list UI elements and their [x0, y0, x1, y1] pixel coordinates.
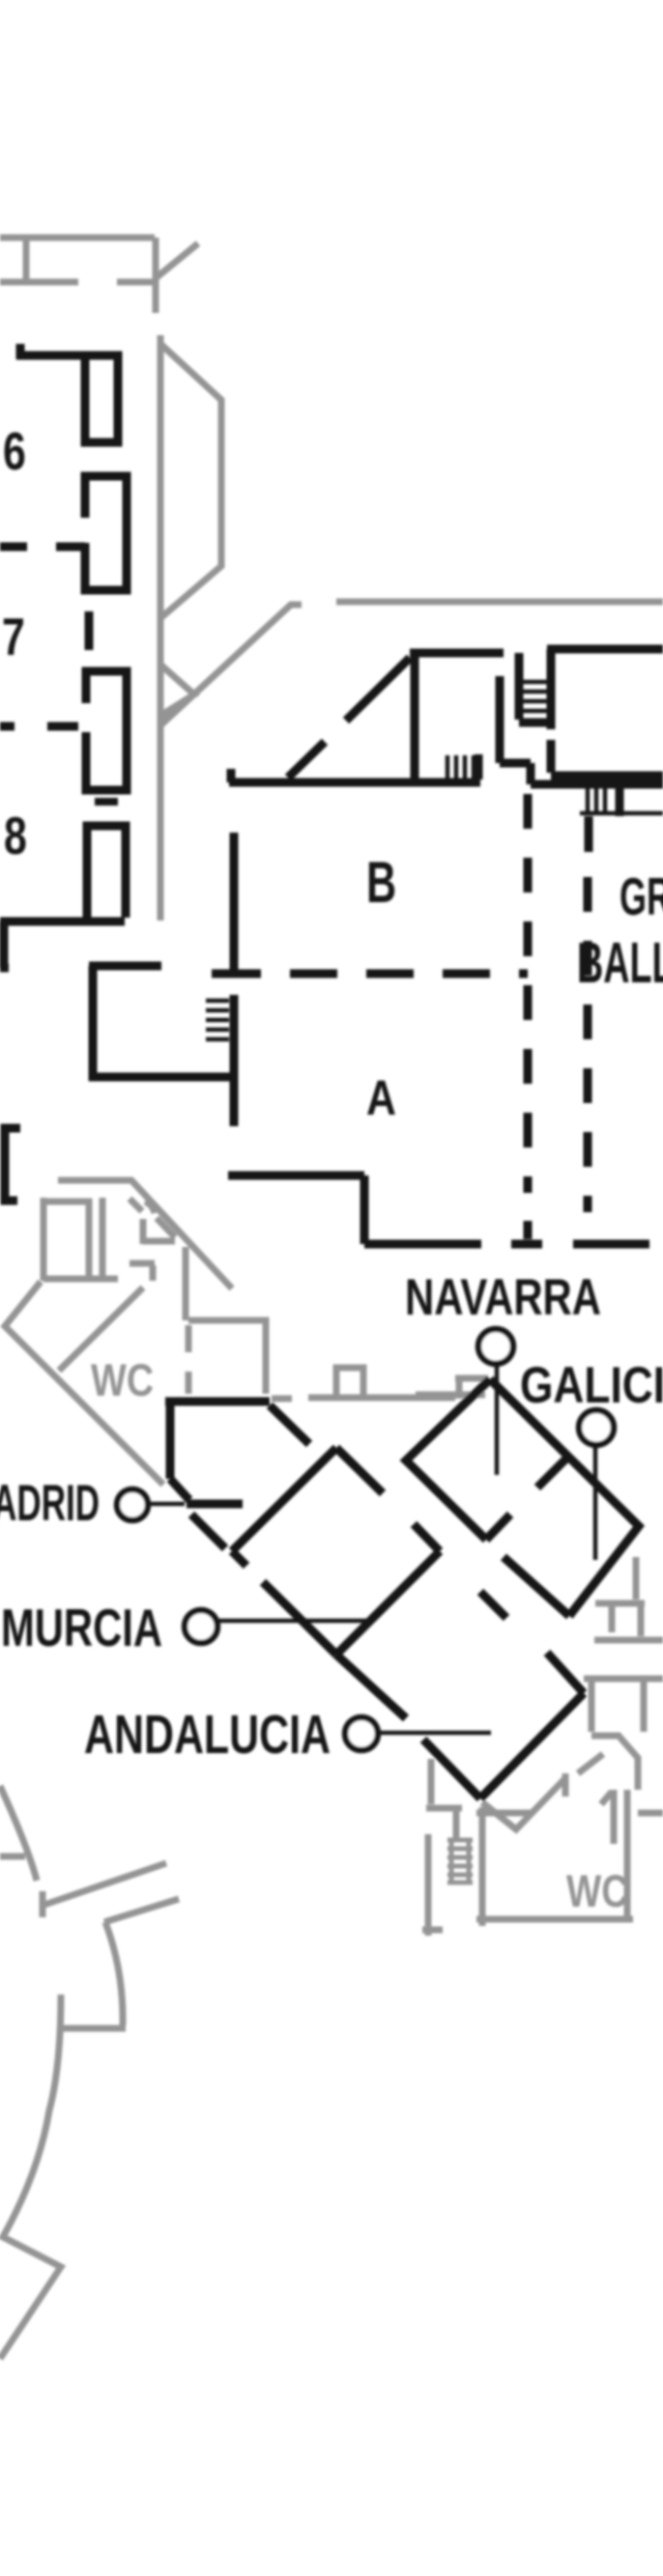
svg-text:WC: WC [91, 1354, 154, 1405]
svg-text:ANDALUCIA: ANDALUCIA [84, 1704, 331, 1766]
svg-text:7: 7 [2, 608, 25, 666]
svg-text:GALICIA: GALICIA [520, 1357, 663, 1414]
svg-text:6: 6 [3, 422, 26, 481]
svg-text:NAVARRA: NAVARRA [405, 1269, 601, 1326]
svg-text:MURCIA: MURCIA [1, 1598, 162, 1657]
svg-text:8: 8 [4, 807, 27, 865]
svg-text:A: A [366, 1069, 396, 1124]
svg-text:MADRID: MADRID [0, 1475, 100, 1532]
svg-text:WC: WC [566, 1865, 628, 1916]
svg-text:B: B [366, 851, 396, 916]
svg-text:BALLROOM: BALLROOM [577, 931, 663, 995]
svg-text:GRAN: GRAN [620, 866, 663, 926]
